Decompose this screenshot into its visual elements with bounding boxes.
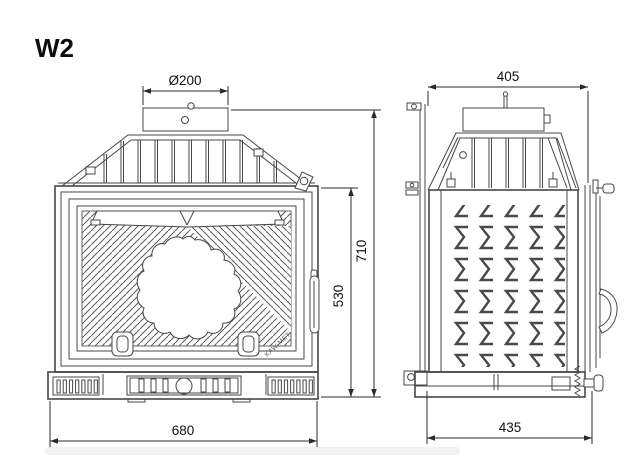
damper-lever-pin xyxy=(503,92,507,96)
hood-brace-right xyxy=(548,138,576,188)
flue-collar-side xyxy=(463,92,550,131)
dim-label-total-height: 710 xyxy=(354,240,369,263)
dim-label-top-depth: 405 xyxy=(497,69,520,84)
side-door-hinge-top xyxy=(593,180,614,193)
dim-label-flue: Ø200 xyxy=(168,73,201,88)
deflector-end-left xyxy=(91,220,100,225)
hood-side-ribs xyxy=(472,138,543,188)
side-body xyxy=(429,190,578,372)
side-handle xyxy=(599,289,617,333)
technical-drawing-page: W2 xyxy=(0,0,624,460)
back-mount-plate xyxy=(404,103,427,385)
door-handle xyxy=(310,270,319,333)
hood-side xyxy=(428,133,579,190)
hood-bolt-right xyxy=(254,149,263,156)
front-base xyxy=(48,372,318,402)
hood-bolt-left xyxy=(86,167,95,174)
front-view: KAW-MET xyxy=(48,103,319,402)
hood-ribs xyxy=(104,140,277,183)
ash-knob xyxy=(584,375,603,391)
damper-pivot xyxy=(188,103,194,109)
door-stop-bracket xyxy=(295,172,313,191)
dim-label-base-depth: 435 xyxy=(499,420,522,435)
side-door-profile xyxy=(585,180,617,372)
air-control-knob xyxy=(176,378,192,394)
dim-base-depth: 435 xyxy=(427,391,592,444)
model-label: W2 xyxy=(35,33,74,63)
door-glass: KAW-MET xyxy=(82,211,292,359)
dim-door-height: 530 xyxy=(321,188,358,397)
dim-label-width: 680 xyxy=(172,423,195,438)
side-view xyxy=(404,92,617,397)
dim-label-door-height: 530 xyxy=(331,285,346,308)
air-deflector xyxy=(91,211,284,227)
ash-drawer-panel xyxy=(103,374,266,395)
flue-collar xyxy=(143,103,228,131)
grate-serration xyxy=(575,366,580,396)
bottom-shadow xyxy=(45,447,460,455)
base-vent-left xyxy=(53,377,99,395)
latch-left xyxy=(112,332,133,356)
hood-outline xyxy=(62,135,310,186)
hood-brace-left xyxy=(443,137,458,168)
side-base xyxy=(415,366,603,397)
deflector-end-right xyxy=(275,220,284,225)
dim-width: 680 xyxy=(50,401,317,447)
latch-right xyxy=(238,332,259,356)
hood xyxy=(58,135,315,186)
dim-flue-diameter: Ø200 xyxy=(143,73,228,105)
fireplace-insert-drawing: W2 xyxy=(0,0,624,460)
side-zigzag-panel xyxy=(443,205,565,367)
base-vent-right xyxy=(268,377,314,395)
